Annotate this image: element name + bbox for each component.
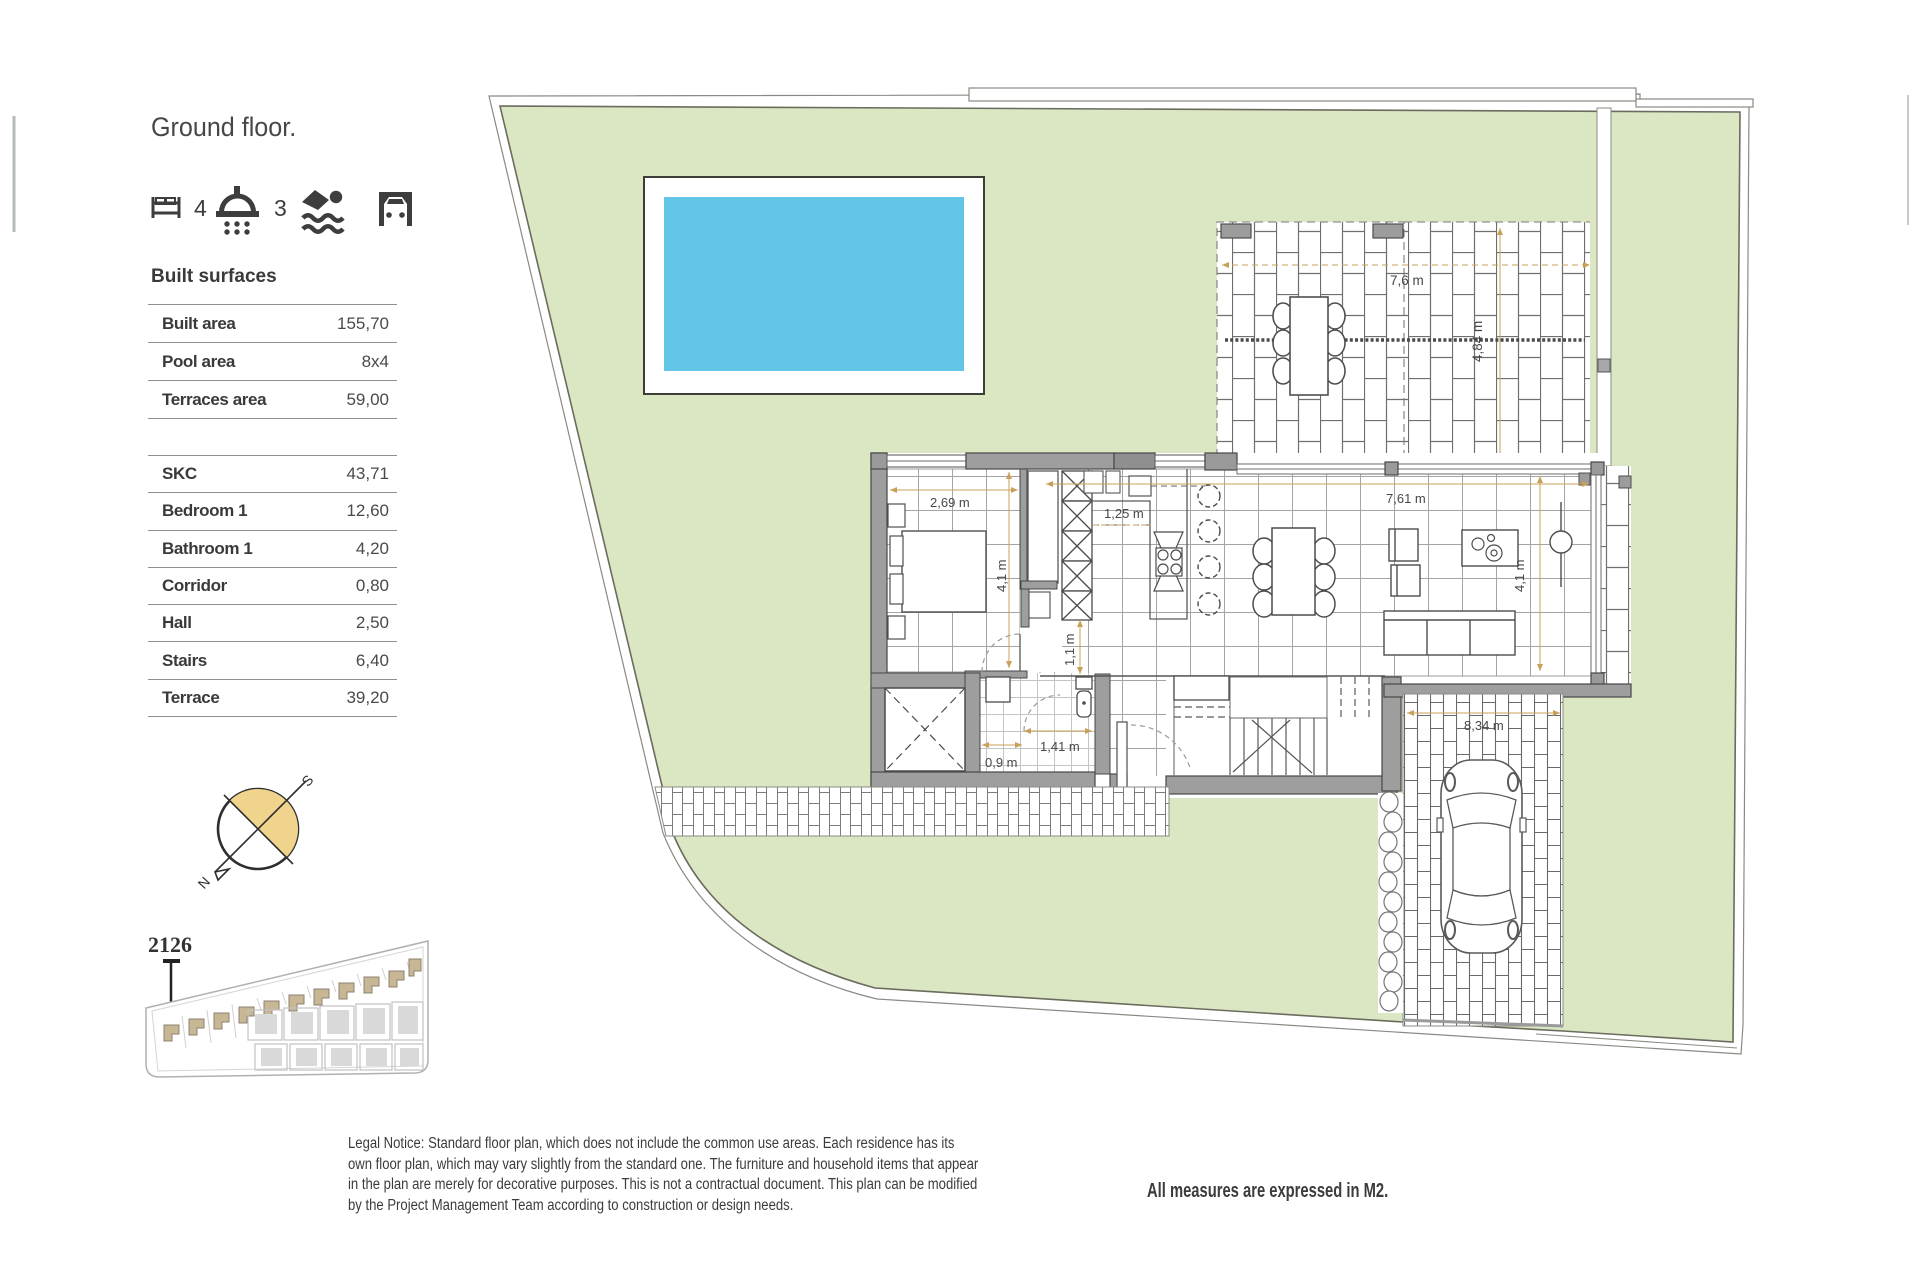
svg-text:7,61 m: 7,61 m (1386, 491, 1426, 506)
svg-text:8,34 m: 8,34 m (1464, 718, 1504, 733)
svg-text:1,41 m: 1,41 m (1040, 739, 1080, 754)
svg-text:4,1 m: 4,1 m (994, 559, 1009, 592)
svg-text:2,69 m: 2,69 m (930, 495, 970, 510)
svg-text:1,25 m: 1,25 m (1104, 506, 1144, 521)
svg-text:2126: 2126 (148, 932, 192, 957)
svg-text:1,1 m: 1,1 m (1062, 633, 1077, 666)
svg-text:N: N (194, 874, 213, 892)
svg-text:4,84 m: 4,84 m (1470, 321, 1485, 362)
svg-text:0,9 m: 0,9 m (985, 755, 1018, 770)
svg-text:7,6 m: 7,6 m (1390, 273, 1424, 288)
svg-text:4,1 m: 4,1 m (1512, 559, 1527, 592)
